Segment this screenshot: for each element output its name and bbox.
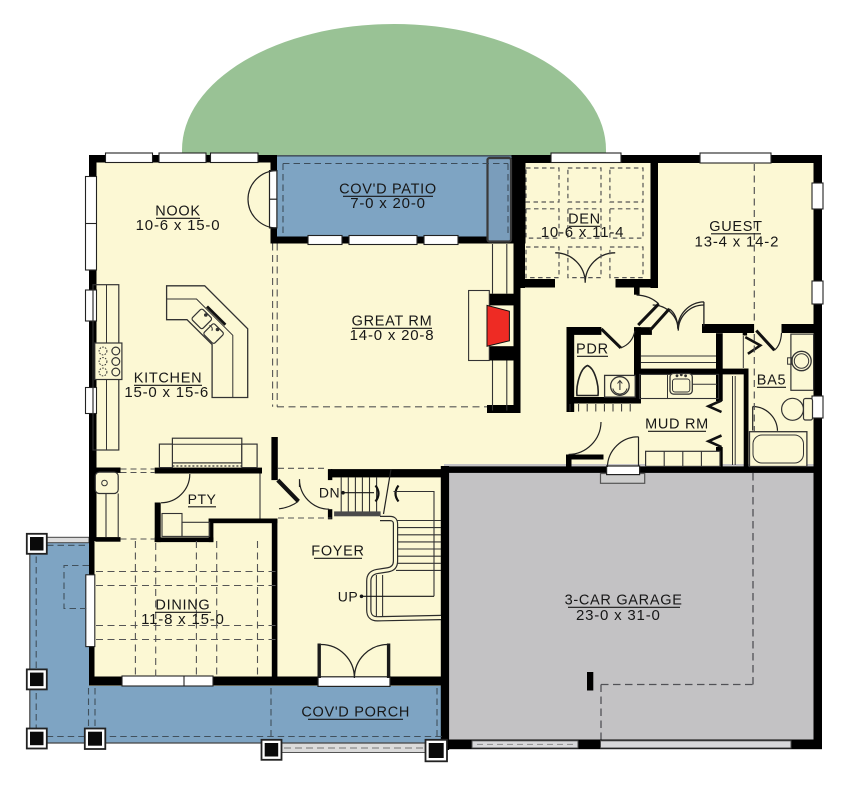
svg-text:10-6 x 11-4: 10-6 x 11-4 bbox=[541, 224, 625, 241]
svg-text:DN: DN bbox=[319, 485, 340, 501]
svg-text:15-0 x 15-6: 15-0 x 15-6 bbox=[124, 384, 209, 401]
svg-text:PDR: PDR bbox=[576, 342, 609, 358]
svg-text:11-8 x 15-0: 11-8 x 15-0 bbox=[141, 611, 225, 628]
svg-text:BA5: BA5 bbox=[757, 373, 787, 389]
svg-text:23-0 x 31-0: 23-0 x 31-0 bbox=[576, 607, 661, 624]
svg-text:7-0 x 20-0: 7-0 x 20-0 bbox=[350, 195, 426, 212]
svg-text:MUD RM: MUD RM bbox=[645, 417, 709, 433]
svg-text:PTY: PTY bbox=[188, 491, 217, 507]
svg-text:FOYER: FOYER bbox=[311, 544, 364, 560]
svg-text:14-0 x 20-8: 14-0 x 20-8 bbox=[350, 327, 435, 344]
svg-text:13-4 x 14-2: 13-4 x 14-2 bbox=[695, 234, 780, 251]
svg-text:COV'D PORCH: COV'D PORCH bbox=[301, 705, 410, 721]
svg-text:UP: UP bbox=[338, 589, 358, 605]
svg-text:10-6 x 15-0: 10-6 x 15-0 bbox=[136, 217, 221, 234]
